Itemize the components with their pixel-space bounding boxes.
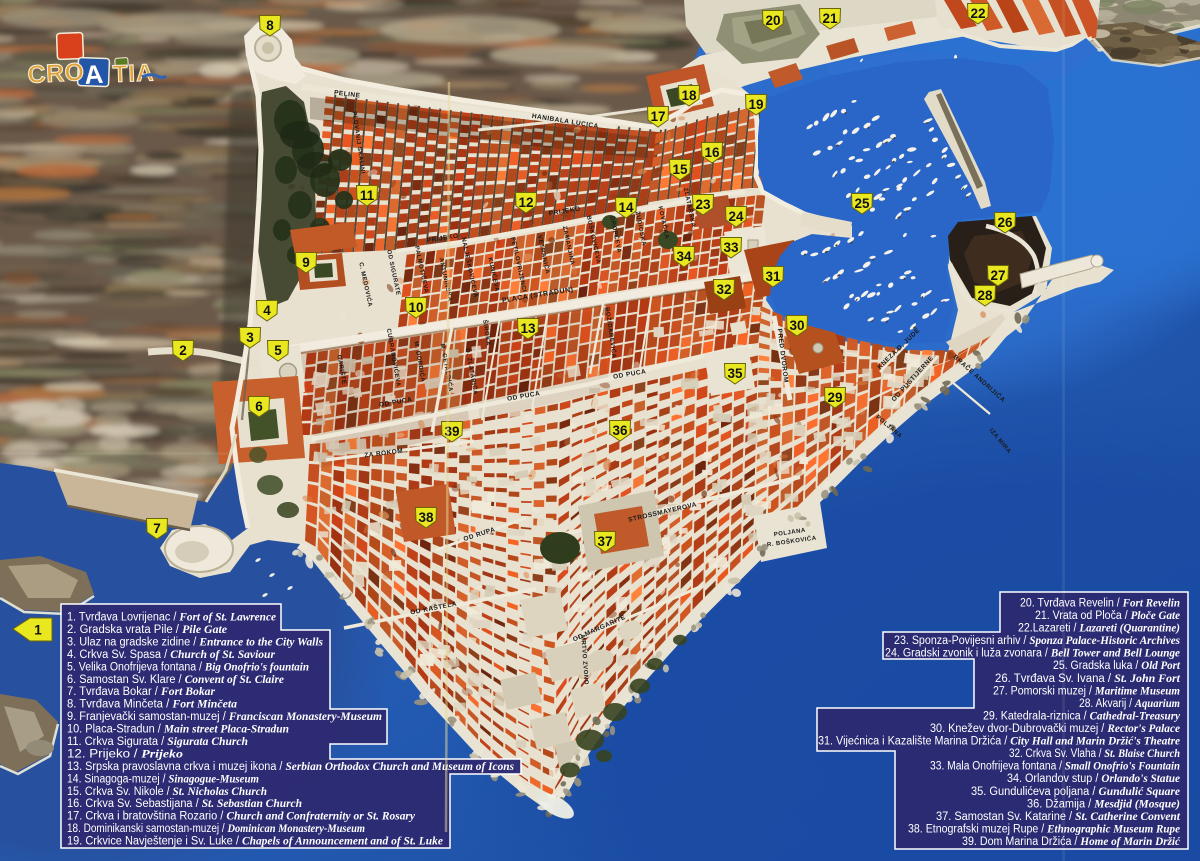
svg-text:12: 12 xyxy=(518,195,533,210)
svg-text:18: 18 xyxy=(681,88,697,103)
svg-text:22: 22 xyxy=(970,6,985,21)
svg-text:36: 36 xyxy=(612,423,628,438)
svg-text:7: 7 xyxy=(153,521,161,536)
svg-text:9: 9 xyxy=(302,255,310,270)
svg-text:15: 15 xyxy=(672,162,688,177)
svg-text:19: 19 xyxy=(748,97,763,112)
svg-text:37: 37 xyxy=(597,534,612,549)
svg-text:20: 20 xyxy=(765,13,780,28)
svg-text:38: 38 xyxy=(418,510,434,525)
svg-text:8. Tvrđava Minčeta / Fort Minč: 8. Tvrđava Minčeta / Fort Minčeta xyxy=(67,697,237,711)
svg-text:35: 35 xyxy=(727,366,743,381)
svg-text:34: 34 xyxy=(676,249,692,264)
svg-text:5: 5 xyxy=(274,343,282,358)
svg-text:19. Crkvice Navještenje i Sv.: 19. Crkvice Navještenje i Sv. Luke / Cha… xyxy=(67,834,444,848)
svg-text:A: A xyxy=(83,59,104,90)
svg-text:24. Gradski zvonik i luža zvon: 24. Gradski zvonik i luža zvonara / Bell… xyxy=(885,646,1181,660)
svg-text:31: 31 xyxy=(765,269,781,284)
svg-text:4: 4 xyxy=(263,303,271,318)
svg-text:39. Dom Marina Držića / Home o: 39. Dom Marina Držića / Home of Marin Dr… xyxy=(962,834,1181,848)
svg-text:CRO: CRO xyxy=(27,58,85,89)
svg-text:24: 24 xyxy=(728,209,744,224)
svg-text:32: 32 xyxy=(716,282,731,297)
svg-text:13: 13 xyxy=(520,321,536,336)
svg-text:30: 30 xyxy=(789,318,804,333)
svg-text:6: 6 xyxy=(255,399,263,414)
svg-text:27: 27 xyxy=(990,268,1005,283)
svg-text:3: 3 xyxy=(246,330,254,345)
svg-text:1: 1 xyxy=(34,623,42,638)
svg-text:17: 17 xyxy=(650,109,665,124)
svg-text:21: 21 xyxy=(822,11,838,26)
svg-text:25: 25 xyxy=(854,196,870,211)
svg-text:10: 10 xyxy=(408,300,423,315)
svg-text:14: 14 xyxy=(618,200,634,215)
svg-text:8: 8 xyxy=(266,18,274,33)
svg-text:12. Prijeko / Prijeko: 12. Prijeko / Prijeko xyxy=(67,747,183,761)
svg-text:11: 11 xyxy=(360,188,375,203)
svg-text:29: 29 xyxy=(827,390,842,405)
svg-text:1. Tvrđava Lovrijenac / Fort o: 1. Tvrđava Lovrijenac / Fort of St. Lawr… xyxy=(67,610,277,624)
svg-text:28: 28 xyxy=(977,288,993,303)
svg-text:23: 23 xyxy=(695,197,711,212)
svg-text:2: 2 xyxy=(179,343,187,358)
svg-text:16: 16 xyxy=(704,145,720,160)
svg-text:26: 26 xyxy=(997,215,1013,230)
svg-text:33: 33 xyxy=(723,240,739,255)
